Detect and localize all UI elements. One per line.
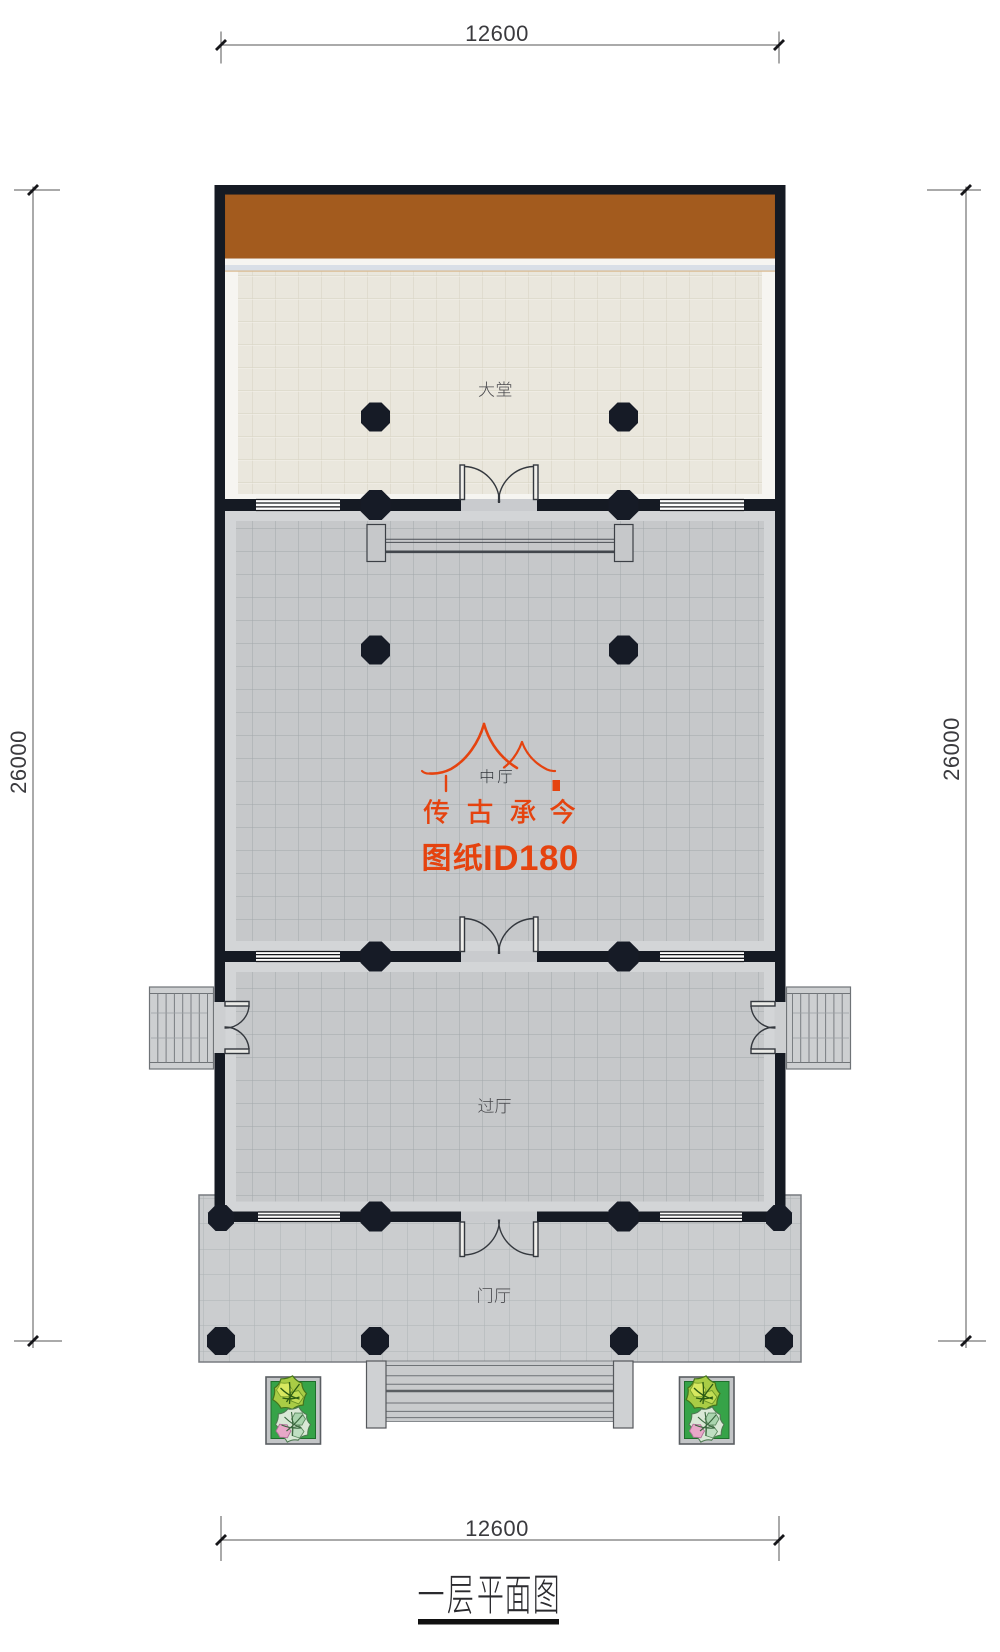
svg-text:26000: 26000 <box>6 730 31 794</box>
svg-text:12600: 12600 <box>465 21 529 46</box>
svg-text:ID180: ID180 <box>483 839 579 878</box>
svg-text:26000: 26000 <box>939 717 964 781</box>
svg-text:12600: 12600 <box>465 1516 529 1541</box>
